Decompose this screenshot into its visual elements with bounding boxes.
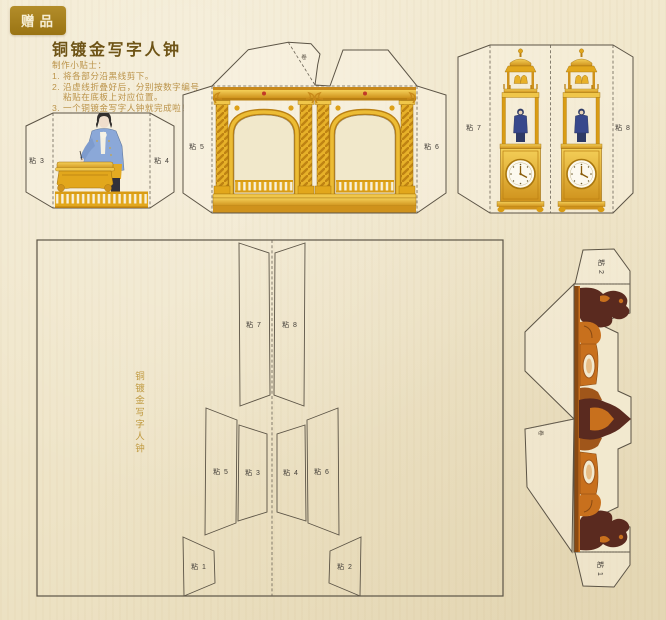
papercraft-sheet: 赠品 铜镀金写字人钟 制作小贴士： 1. 将各部分沿黑线剪下。 2. 沿虚线折叠… <box>0 0 666 620</box>
tab-label-6-board: 粘 6 <box>314 467 330 477</box>
board-vertical-title: 铜镀金写字人钟 <box>131 371 145 455</box>
tab-label-2-board: 粘 2 <box>337 562 353 572</box>
piece-ornament-strip <box>525 249 631 587</box>
fold-mark-strip: 卷 <box>537 430 545 436</box>
red-gem <box>262 92 266 96</box>
tab-label-4-board: 粘 4 <box>283 468 299 478</box>
tab-label-1-board: 粘 1 <box>191 562 207 572</box>
upper-fold-flap <box>525 284 574 419</box>
tab-label-5-panel: 粘 5 <box>189 142 205 152</box>
red-gem <box>363 92 367 96</box>
fold-mark-arches: 卷 <box>301 53 307 61</box>
tab-label-6-panel: 粘 6 <box>424 142 440 152</box>
piece-figure-panel <box>26 112 174 209</box>
tab-label-5-board: 粘 5 <box>213 467 229 477</box>
tab-label-7-panel: 粘 7 <box>466 123 482 133</box>
gold-fence <box>55 192 148 209</box>
tab-label-3-board: 粘 3 <box>245 468 261 478</box>
base-board <box>37 240 503 596</box>
tab-label-4-panel: 粘 4 <box>154 156 170 166</box>
tab-label-8-board: 粘 8 <box>282 320 298 330</box>
tab-label-8-panel: 粘 8 <box>615 123 631 133</box>
tab-label-1-strip: 粘 1 <box>595 561 605 577</box>
tab-label-3-panel: 粘 3 <box>29 156 45 166</box>
template-graphics <box>0 0 666 620</box>
tab-label-7-board: 粘 7 <box>246 320 262 330</box>
piece-clock-towers-panel <box>458 45 633 213</box>
ornament-artwork <box>575 286 632 552</box>
tab-label-2-strip: 粘 2 <box>596 259 606 275</box>
clock-face <box>506 160 535 189</box>
piece-arches-panel <box>183 42 446 213</box>
lower-fold-flap <box>525 419 574 552</box>
